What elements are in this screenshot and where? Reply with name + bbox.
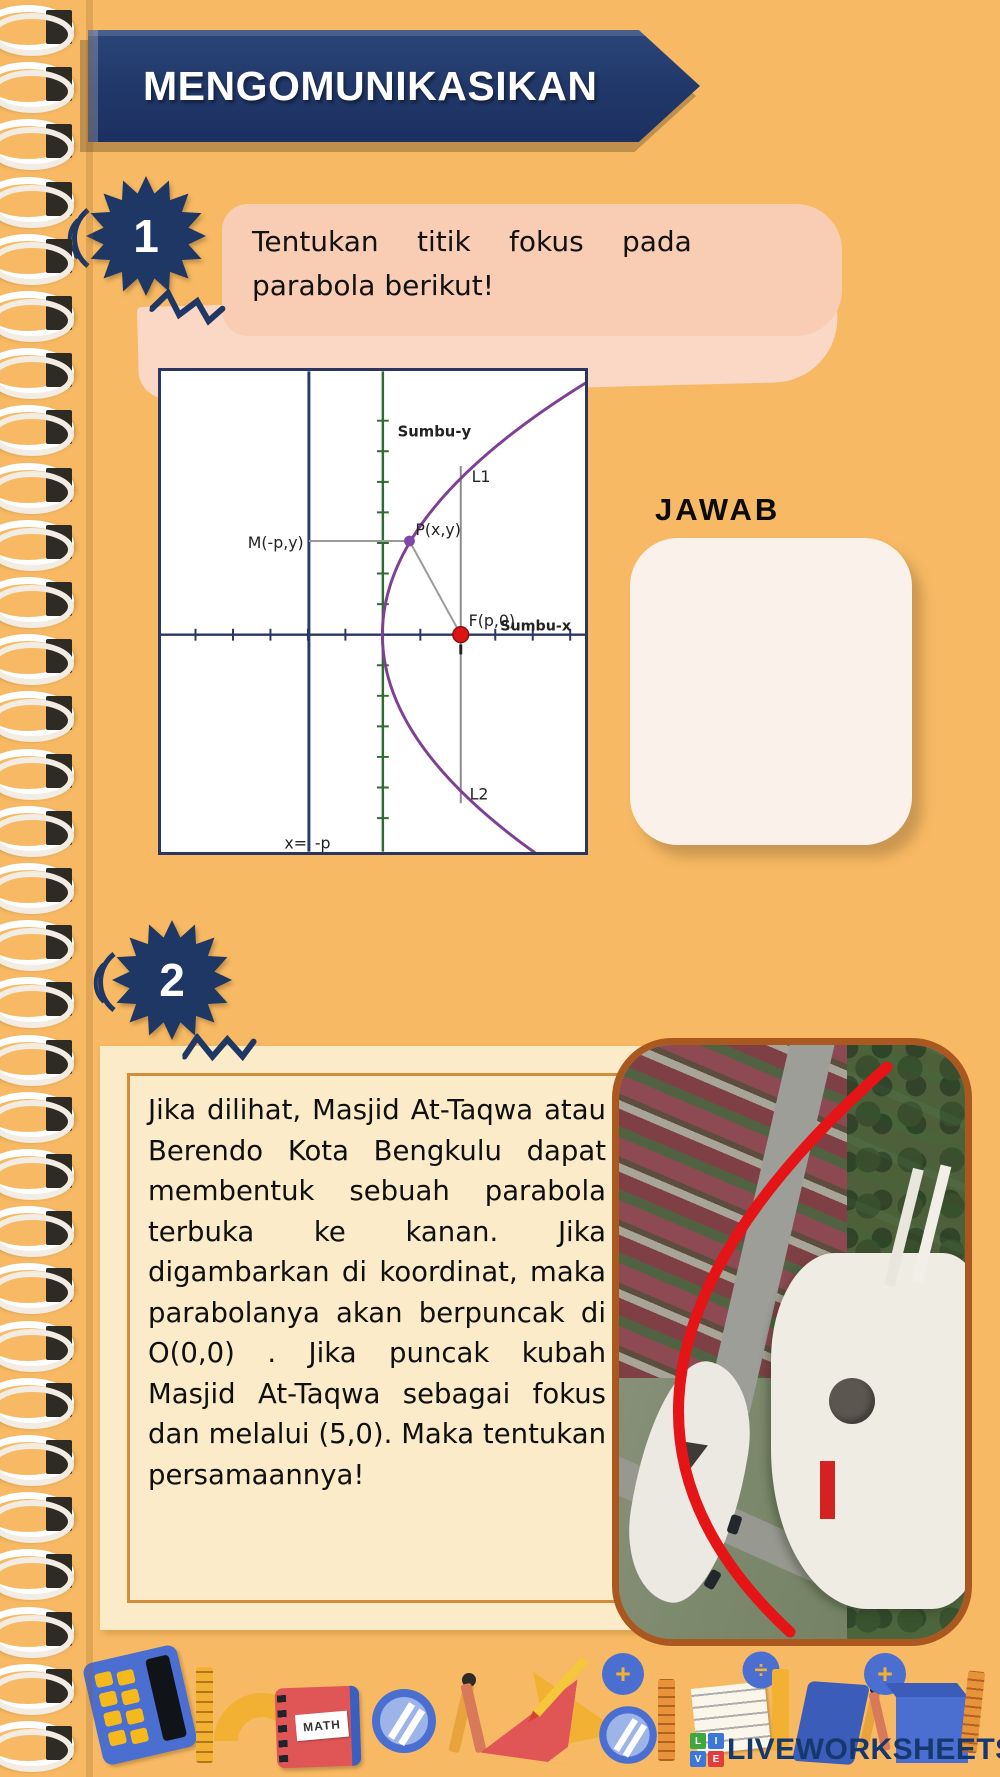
- question1-bubble: Tentukan titik fokus pada parabola berik…: [222, 204, 842, 336]
- directrix-x-label: x=: [284, 834, 307, 852]
- ruler-icon: [658, 1679, 675, 1761]
- notebook-spiral: [277, 1694, 288, 1762]
- ruler-icon: [196, 1667, 213, 1763]
- focus-dot: [453, 627, 469, 643]
- compass-knob: [462, 1673, 476, 1687]
- emphasis-squiggle: [181, 1029, 259, 1068]
- p-label: P(x,y): [415, 520, 460, 539]
- logo-block-i: I: [708, 1733, 724, 1749]
- question2-badge: 2: [112, 920, 232, 1040]
- spiral-binding: [0, 0, 110, 1777]
- question2-number: 2: [112, 920, 232, 1040]
- logo-block-l: L: [690, 1733, 706, 1749]
- l2-label: L2: [470, 784, 489, 803]
- question2-text: Jika dilihat, Masjid At-Taqwa atau Beren…: [148, 1090, 606, 1495]
- question1-line2: parabola berikut!: [252, 264, 812, 308]
- plus-badge-icon: +: [602, 1653, 644, 1695]
- calculator-screen: [145, 1654, 187, 1741]
- logo-block-e: E: [708, 1751, 724, 1767]
- mirror-icon: [372, 1689, 436, 1753]
- red-parabola-overlay: [619, 1045, 965, 1639]
- pf-segment: [409, 541, 460, 635]
- m-label: M(-p,y): [248, 533, 304, 552]
- mirror-icon: [599, 1706, 657, 1764]
- logo-block-v: V: [690, 1751, 706, 1767]
- math-notebook-label: MATH: [295, 1711, 349, 1741]
- sumbu-x-label: Sumbu-x: [500, 619, 571, 635]
- math-notebook-icon: MATH: [275, 1686, 362, 1769]
- l1-label: L1: [472, 467, 491, 486]
- section-title: MENGOMUNIKASIKAN: [143, 30, 597, 142]
- worksheet-page: MENGOMUNIKASIKAN 1 Tentukan titik fokus …: [0, 0, 1000, 1777]
- point-p-dot: [404, 536, 415, 547]
- directrix-p-label: -p: [315, 834, 331, 852]
- logo-blocks: L I V E: [690, 1733, 724, 1767]
- liveworksheets-logo: L I V E LIVEWORKSHEETS: [690, 1733, 1000, 1767]
- jawab-heading: JAWAB: [655, 492, 780, 528]
- logo-text: LIVEWORKSHEETS: [727, 1733, 1000, 1767]
- notebook-edge: [350, 1686, 362, 1766]
- answer-box[interactable]: [630, 538, 912, 845]
- section-banner: MENGOMUNIKASIKAN: [88, 30, 700, 142]
- aerial-photo: [612, 1038, 972, 1646]
- parabola-diagram: Sumbu-y L1 P(x,y) M(-p,y) F(p,0) Sumbu-x…: [158, 368, 588, 855]
- sumbu-y-label: Sumbu-y: [398, 423, 472, 440]
- question1-line1: Tentukan titik fokus pada: [252, 220, 812, 264]
- compass-icon: [438, 1669, 498, 1759]
